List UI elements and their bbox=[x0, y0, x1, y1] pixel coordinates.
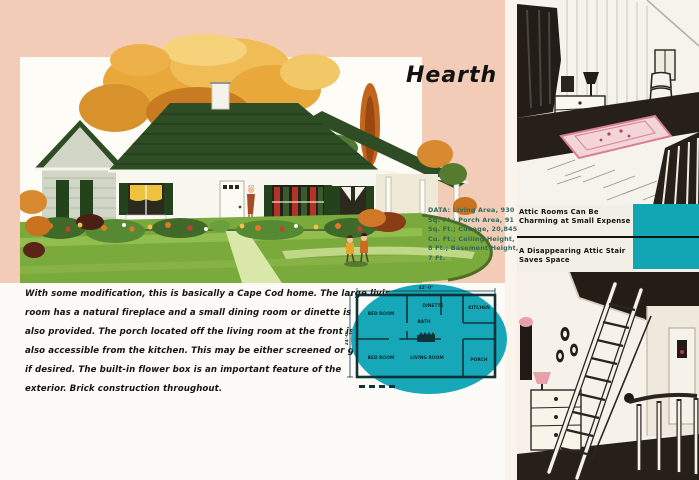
description-line: if desired. The built-in flower box is a… bbox=[25, 361, 355, 380]
caption-attic-stair: A Disappearing Attic Stair Saves Space bbox=[519, 247, 639, 265]
description-line: also provided. The porch located off the… bbox=[25, 323, 355, 342]
divider-rule bbox=[517, 236, 699, 238]
description-line: also accessible from the kitchen. This m… bbox=[25, 342, 355, 361]
picture-frame bbox=[561, 76, 574, 92]
plan-data-block: DATA: Living Area, 930 Sq. Ft.; Porch Ar… bbox=[428, 206, 520, 264]
description-line: room has a natural fireplace and a small… bbox=[25, 304, 355, 323]
description-line: exterior. Brick construction throughout. bbox=[25, 380, 355, 399]
small-picture bbox=[677, 340, 687, 358]
cypress-tree bbox=[360, 83, 380, 167]
data-line: DATA: Living Area, 930 bbox=[428, 206, 520, 216]
data-line: 7 Ft. bbox=[428, 254, 520, 264]
plan-dim-top: 42'-0" bbox=[419, 285, 434, 291]
scale-bar bbox=[359, 385, 395, 388]
caption-line: Saves Space bbox=[519, 256, 639, 265]
right-wall bbox=[647, 306, 699, 436]
caption-attic-rooms: Attic Rooms Can Be Charming at Small Exp… bbox=[519, 208, 639, 226]
wall-sconce bbox=[519, 317, 533, 380]
room-label: BED ROOM bbox=[368, 311, 395, 317]
data-line: Cu. Ft.; Ceiling Height, bbox=[428, 235, 520, 245]
description-line: With some modification, this is basicall… bbox=[25, 285, 355, 304]
data-line: Sq. Ft.; Porch Area, 91 bbox=[428, 216, 520, 226]
caption-line: Charming at Small Expense bbox=[519, 217, 639, 226]
room-label: DINETTE bbox=[422, 303, 443, 309]
yellow-curtain-window bbox=[119, 183, 173, 220]
caption-line: Attic Rooms Can Be bbox=[519, 208, 639, 217]
plan-title: Hearth bbox=[406, 63, 506, 88]
data-line: Sq. Ft.; Cubage, 20,845 bbox=[428, 225, 520, 235]
chimney bbox=[212, 83, 229, 109]
room-label: BED ROOM bbox=[368, 355, 395, 361]
room-label: BATH bbox=[417, 319, 430, 325]
plan-dim-left: 24'-0" bbox=[345, 331, 350, 346]
attic-room-illustration bbox=[517, 0, 699, 205]
floor-plan: 42'-0" 24'-0" BED ROOM BATH DINETTE KITC… bbox=[345, 283, 507, 397]
plan-description: With some modification, this is basicall… bbox=[25, 285, 355, 399]
room-label: LIVING ROOM bbox=[410, 355, 444, 361]
room-label: KITCHEN bbox=[468, 305, 490, 311]
catalog-page: Hearth DATA: Living Area, 930 Sq. Ft.; P… bbox=[0, 0, 699, 480]
attic-stair-illustration bbox=[517, 272, 699, 480]
data-line: 8 Ft.; Basement Height, bbox=[428, 244, 520, 254]
caption-line: A Disappearing Attic Stair bbox=[519, 247, 639, 256]
room-label: PORCH bbox=[470, 357, 488, 363]
